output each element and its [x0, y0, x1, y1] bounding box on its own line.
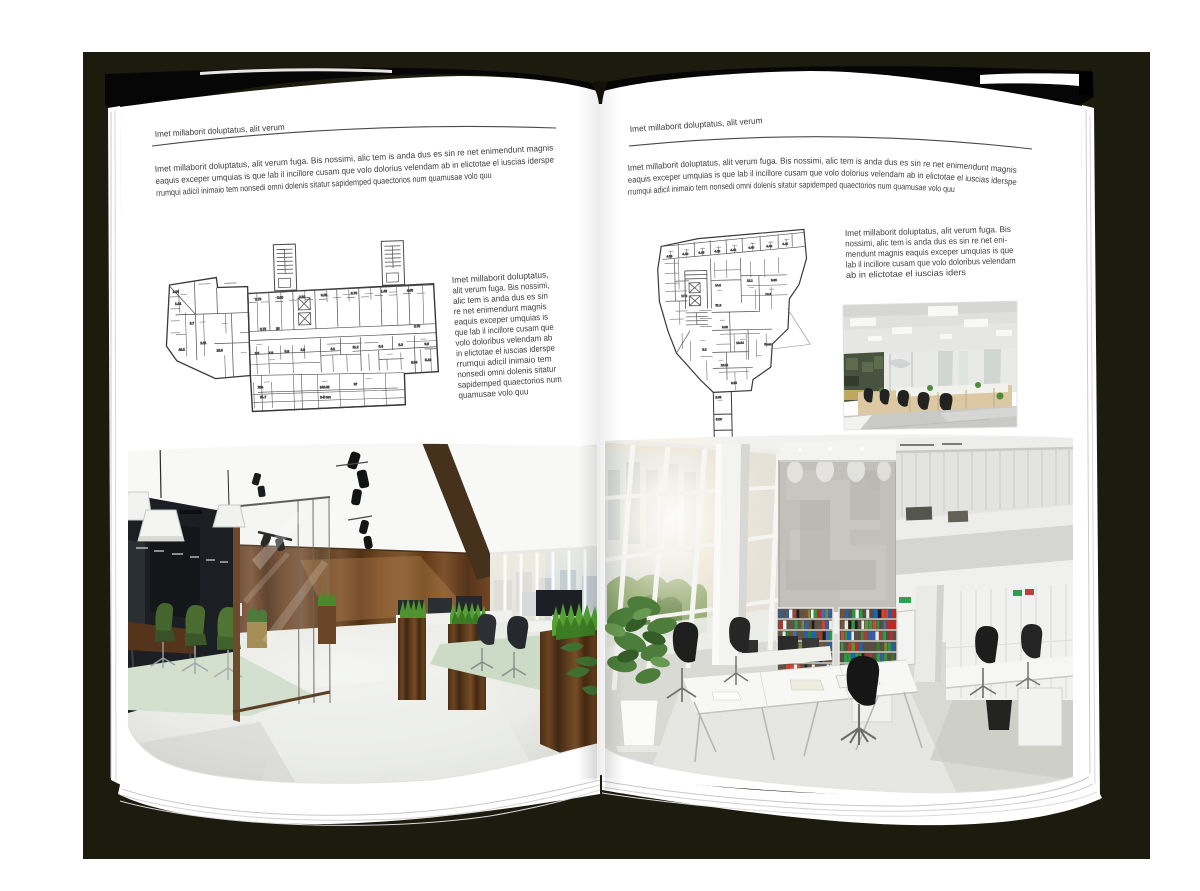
svg-text:4.40: 4.40 [682, 252, 688, 256]
svg-text:25: 25 [276, 327, 280, 331]
svg-text:29a: 29a [258, 385, 264, 389]
svg-text:4.48: 4.48 [766, 244, 772, 248]
svg-text:1.45: 1.45 [381, 289, 388, 293]
svg-text:4.38: 4.38 [666, 254, 672, 258]
svg-text:5.08: 5.08 [716, 417, 722, 421]
svg-text:4.8: 4.8 [269, 351, 274, 355]
svg-text:6.08: 6.08 [722, 325, 728, 329]
svg-text:9.98: 9.98 [731, 381, 737, 385]
svg-text:4.46: 4.46 [698, 251, 704, 255]
svg-text:3.7: 3.7 [190, 321, 195, 325]
svg-text:342.02: 342.02 [320, 385, 330, 389]
svg-text:5.8: 5.8 [285, 349, 290, 353]
svg-text:2.11: 2.11 [200, 341, 206, 345]
svg-text:4.46: 4.46 [730, 248, 736, 252]
svg-text:2.08: 2.08 [715, 395, 721, 399]
svg-text:2-й зал: 2-й зал [320, 395, 331, 399]
svg-text:8.2: 8.2 [398, 343, 403, 347]
svg-text:2.72: 2.72 [260, 327, 267, 331]
svg-text:15.6: 15.6 [217, 348, 224, 352]
svg-text:2.8: 2.8 [301, 348, 306, 352]
svg-text:5.8: 5.8 [702, 347, 707, 351]
svg-text:9.6: 9.6 [424, 342, 429, 346]
svg-text:6.1: 6.1 [331, 347, 336, 351]
svg-text:4.08: 4.08 [407, 288, 414, 292]
svg-text:2.75: 2.75 [255, 297, 262, 301]
svg-text:4.08: 4.08 [714, 249, 720, 253]
svg-text:10.8: 10.8 [765, 292, 771, 296]
svg-text:2.06: 2.06 [173, 290, 180, 294]
svg-text:Комн: Комн [764, 342, 772, 346]
svg-text:2.10: 2.10 [299, 295, 306, 299]
svg-text:3.09: 3.09 [321, 293, 328, 297]
svg-text:2.9: 2.9 [255, 351, 260, 355]
svg-text:4.41: 4.41 [782, 242, 788, 246]
svg-text:5.43: 5.43 [425, 358, 432, 362]
svg-text:40.2: 40.2 [178, 348, 185, 352]
svg-text:14.6: 14.6 [715, 283, 721, 287]
svg-text:37: 37 [354, 382, 358, 386]
svg-text:9.96: 9.96 [771, 278, 777, 282]
svg-text:11.2: 11.2 [352, 345, 358, 349]
svg-text:1.91: 1.91 [175, 302, 182, 306]
svg-text:13.01: 13.01 [721, 363, 729, 367]
svg-text:4.40: 4.40 [748, 245, 754, 249]
svg-text:0.54: 0.54 [411, 360, 418, 364]
svg-text:31.7: 31.7 [260, 395, 267, 399]
svg-text:31.2: 31.2 [715, 303, 721, 307]
svg-text:12.1: 12.1 [747, 279, 753, 283]
svg-text:2.70: 2.70 [414, 324, 421, 328]
svg-text:5.78: 5.78 [351, 291, 358, 295]
svg-text:5.4: 5.4 [378, 344, 383, 348]
svg-text:17.2: 17.2 [681, 294, 687, 298]
svg-text:19.34: 19.34 [736, 341, 744, 345]
